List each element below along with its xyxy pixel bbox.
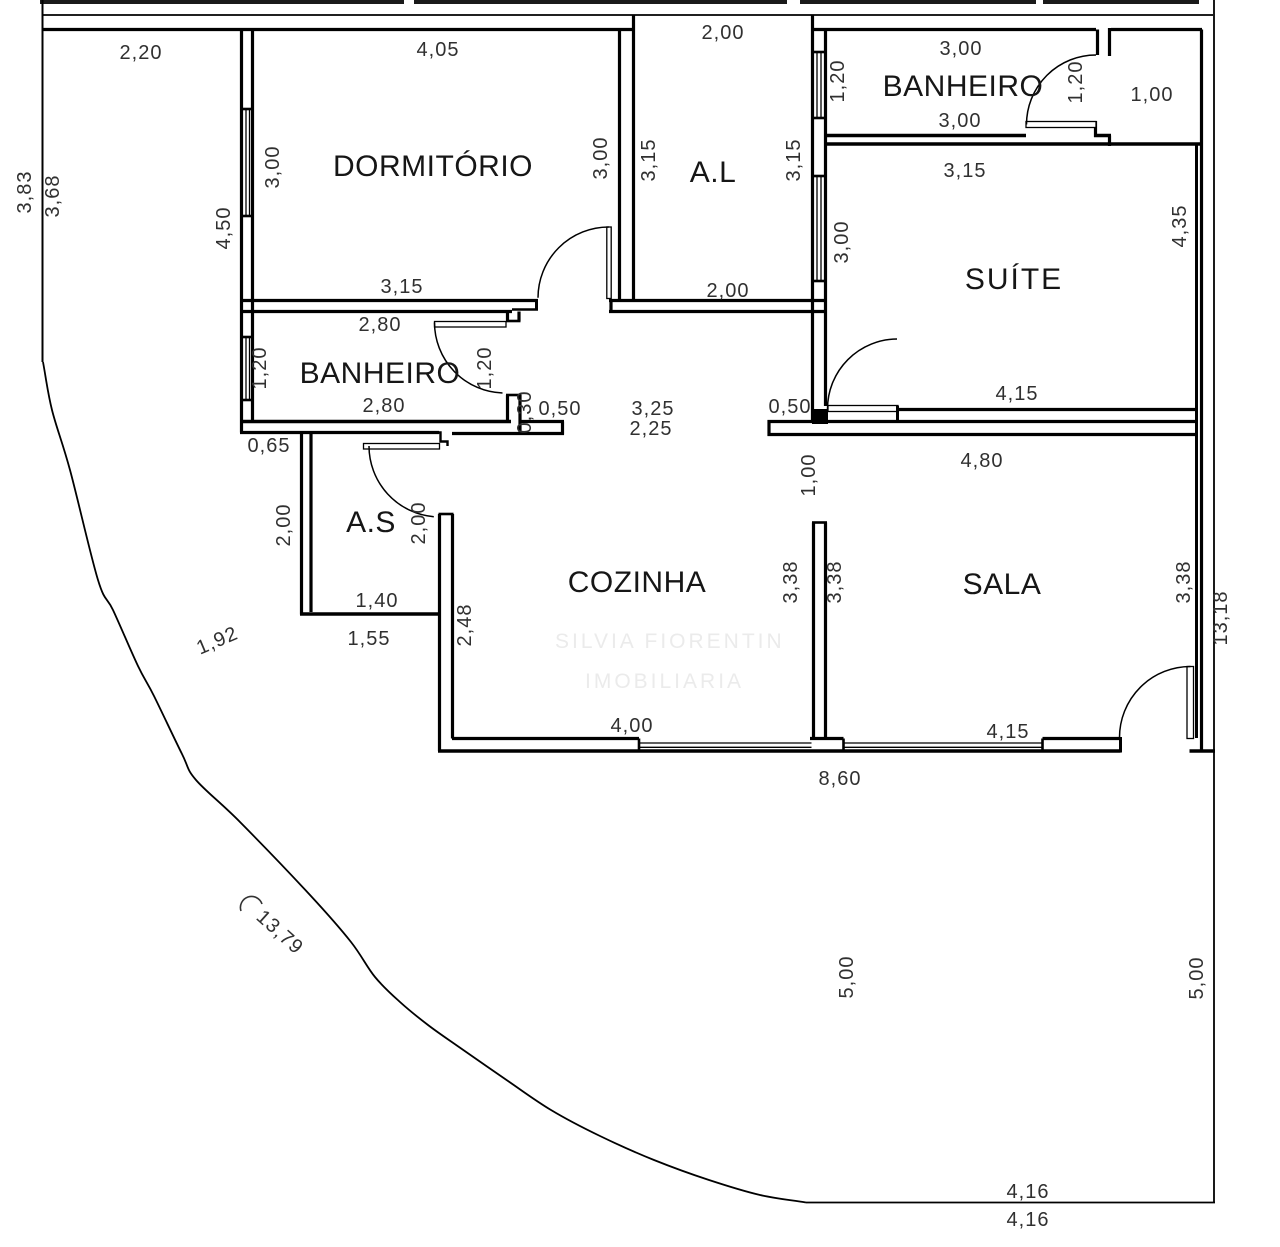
svg-text:IMOBILIARIA: IMOBILIARIA <box>585 670 744 693</box>
svg-text:2,00: 2,00 <box>273 504 295 547</box>
svg-text:4,00: 4,00 <box>611 715 654 737</box>
svg-text:2,25: 2,25 <box>630 418 673 440</box>
svg-text:1,55: 1,55 <box>348 628 391 650</box>
svg-text:3,00: 3,00 <box>940 38 983 60</box>
svg-text:1,20: 1,20 <box>1065 61 1087 104</box>
svg-text:2,00: 2,00 <box>408 502 430 545</box>
svg-text:4,50: 4,50 <box>213 207 235 250</box>
svg-text:4,35: 4,35 <box>1169 205 1191 248</box>
svg-text:A.L: A.L <box>690 156 737 189</box>
svg-text:3,00: 3,00 <box>590 137 612 180</box>
svg-text:4,15: 4,15 <box>987 721 1030 743</box>
svg-text:SUÍTE: SUÍTE <box>965 263 1063 296</box>
svg-text:3,68: 3,68 <box>42 175 64 218</box>
svg-text:5,00: 5,00 <box>1186 957 1208 1000</box>
svg-text:0,30: 0,30 <box>514 391 536 434</box>
svg-text:3,38: 3,38 <box>1173 561 1195 604</box>
svg-text:4,15: 4,15 <box>996 383 1039 405</box>
svg-text:1,40: 1,40 <box>356 590 399 612</box>
svg-text:3,15: 3,15 <box>381 276 424 298</box>
svg-text:2,80: 2,80 <box>363 395 406 417</box>
svg-text:3,15: 3,15 <box>783 139 805 182</box>
svg-text:2,80: 2,80 <box>359 314 402 336</box>
svg-text:1,20: 1,20 <box>474 347 496 390</box>
svg-text:1,00: 1,00 <box>1131 84 1174 106</box>
svg-text:COZINHA: COZINHA <box>568 566 707 599</box>
svg-text:2,00: 2,00 <box>707 280 750 302</box>
svg-text:4,16: 4,16 <box>1007 1181 1050 1203</box>
svg-text:0,50: 0,50 <box>769 396 812 418</box>
svg-text:0,65: 0,65 <box>248 435 291 457</box>
svg-text:0,50: 0,50 <box>539 398 582 420</box>
svg-text:4,05: 4,05 <box>417 39 460 61</box>
svg-text:DORMITÓRIO: DORMITÓRIO <box>333 150 533 183</box>
svg-text:BANHEIRO: BANHEIRO <box>300 357 461 390</box>
svg-text:3,00: 3,00 <box>831 221 853 264</box>
svg-text:3,38: 3,38 <box>824 561 846 604</box>
svg-text:3,15: 3,15 <box>944 160 987 182</box>
svg-text:BANHEIRO: BANHEIRO <box>883 70 1044 103</box>
svg-text:3,38: 3,38 <box>780 561 802 604</box>
svg-text:SALA: SALA <box>963 568 1042 601</box>
svg-text:1,20: 1,20 <box>827 60 849 103</box>
svg-text:2,48: 2,48 <box>454 604 476 647</box>
svg-text:A.S: A.S <box>346 506 396 539</box>
svg-text:2,00: 2,00 <box>702 22 745 44</box>
svg-text:4,16: 4,16 <box>1007 1209 1050 1231</box>
svg-text:3,15: 3,15 <box>638 139 660 182</box>
svg-text:13,18: 13,18 <box>1210 590 1232 645</box>
svg-text:4,80: 4,80 <box>961 450 1004 472</box>
svg-text:8,60: 8,60 <box>819 768 862 790</box>
svg-text:5,00: 5,00 <box>836 956 858 999</box>
svg-text:2,20: 2,20 <box>120 42 163 64</box>
svg-text:1,20: 1,20 <box>249 347 271 390</box>
svg-text:3,83: 3,83 <box>14 171 36 214</box>
svg-text:3,25: 3,25 <box>632 398 675 420</box>
svg-text:SILVIA FIORENTIN: SILVIA FIORENTIN <box>555 630 785 653</box>
svg-text:3,00: 3,00 <box>939 110 982 132</box>
svg-text:1,00: 1,00 <box>798 454 820 497</box>
svg-text:3,00: 3,00 <box>262 146 284 189</box>
